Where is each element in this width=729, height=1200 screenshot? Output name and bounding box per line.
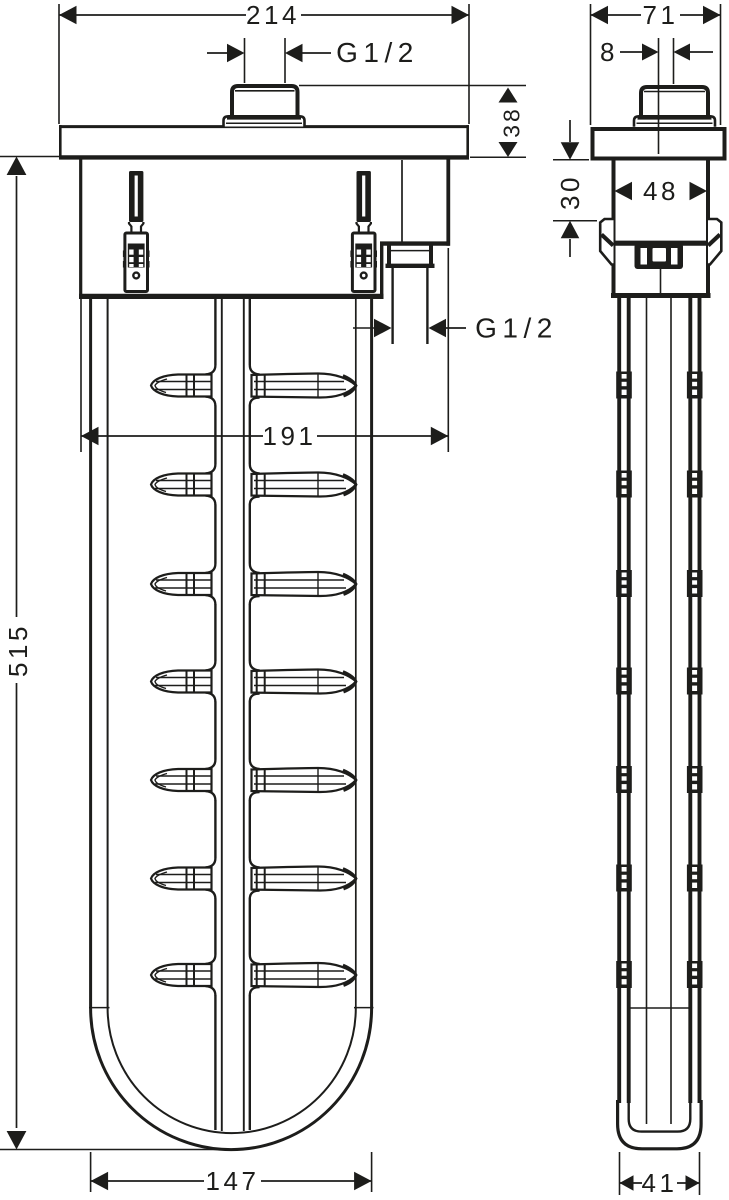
svg-text:38: 38: [499, 106, 525, 138]
svg-text:515: 515: [3, 623, 33, 677]
svg-text:G1/2: G1/2: [336, 37, 419, 68]
svg-text:8: 8: [600, 37, 618, 67]
svg-text:30: 30: [555, 174, 585, 210]
svg-text:G1/2: G1/2: [475, 313, 558, 344]
svg-text:147: 147: [206, 1166, 260, 1196]
svg-text:191: 191: [263, 421, 317, 451]
svg-text:214: 214: [246, 0, 300, 30]
svg-text:71: 71: [643, 0, 679, 30]
svg-text:41: 41: [642, 1168, 678, 1198]
svg-text:48: 48: [643, 176, 679, 206]
